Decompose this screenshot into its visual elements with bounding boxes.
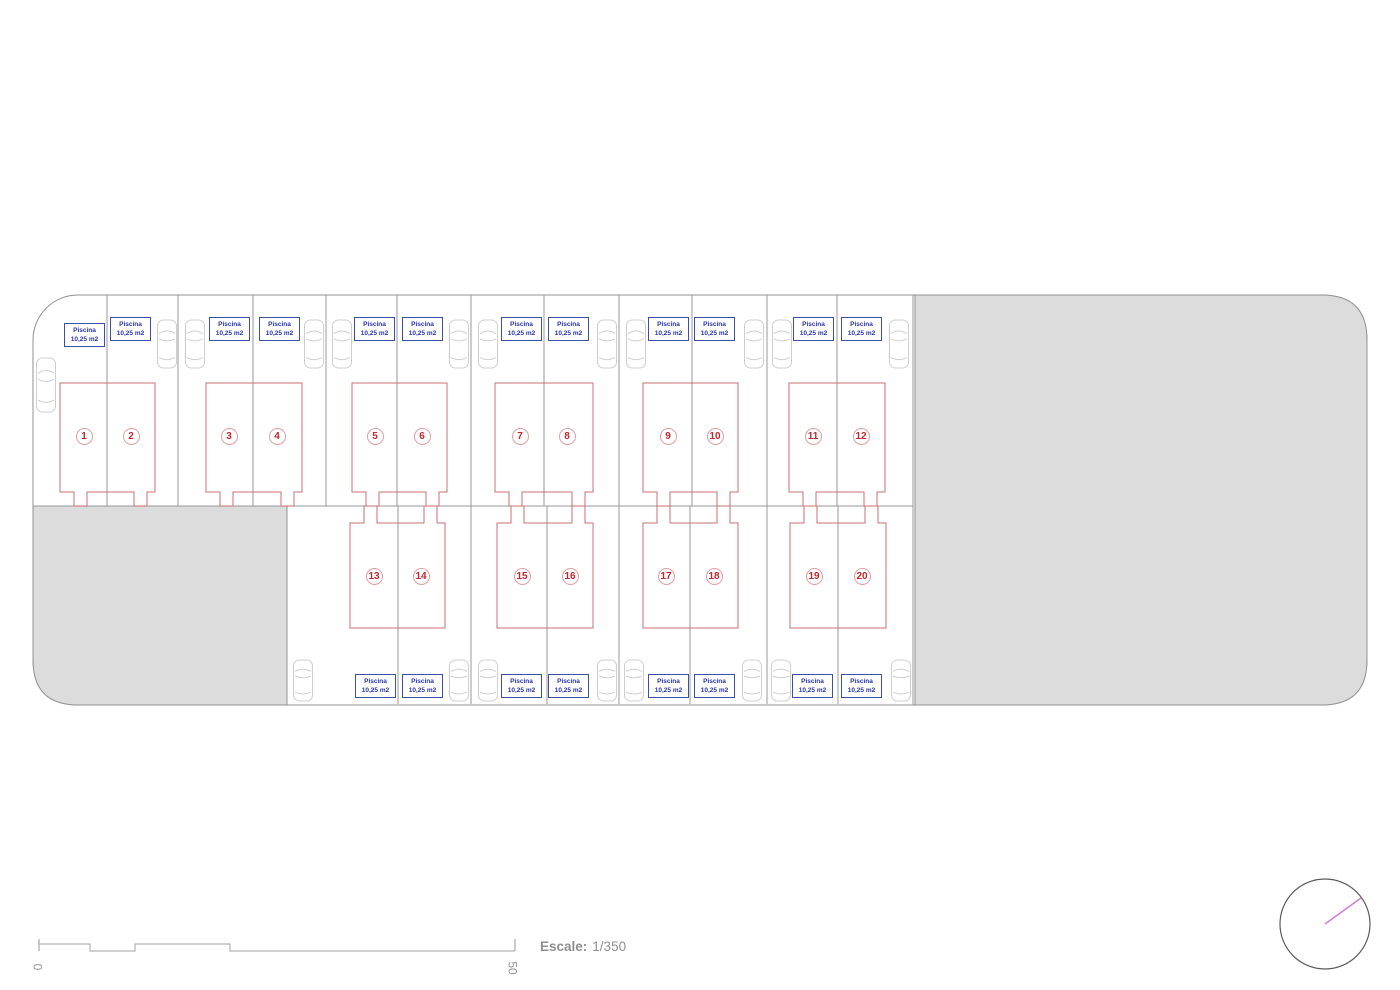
- scale-caption-word: Escale:: [540, 939, 587, 954]
- unit-number-badge: 9: [660, 428, 677, 445]
- site-plan-canvas: Piscina 10,25 m2 1 Piscina 10,25 m2 2 Pi…: [0, 0, 1400, 990]
- pool-label-box: Piscina 10,25 m2: [402, 674, 443, 698]
- unit-number-badge: 8: [559, 428, 576, 445]
- pool-label-box: Piscina 10,25 m2: [64, 323, 105, 347]
- pool-label-line1: Piscina: [403, 678, 442, 687]
- pool-label-line1: Piscina: [356, 678, 395, 687]
- pool-label-line2: 10,25 m2: [403, 687, 442, 696]
- pool-label-line1: Piscina: [549, 321, 588, 330]
- scale-end-label: 50: [506, 961, 520, 974]
- pool-label-box: Piscina 10,25 m2: [354, 317, 395, 341]
- pool-label-box: Piscina 10,25 m2: [501, 317, 542, 341]
- unit-number-badge: 14: [413, 568, 430, 585]
- pool-label-box: Piscina 10,25 m2: [548, 674, 589, 698]
- pool-label-box: Piscina 10,25 m2: [841, 317, 882, 341]
- pool-label-line2: 10,25 m2: [793, 687, 832, 696]
- pool-label-box: Piscina 10,25 m2: [110, 317, 151, 341]
- unit-number-badge: 6: [414, 428, 431, 445]
- pool-label-box: Piscina 10,25 m2: [402, 317, 443, 341]
- pool-label-box: Piscina 10,25 m2: [793, 317, 834, 341]
- unit-number-badge: 19: [806, 568, 823, 585]
- unit-number-badge: 12: [853, 428, 870, 445]
- pool-label-line2: 10,25 m2: [355, 330, 394, 339]
- scale-caption-ratio: 1/350: [592, 939, 626, 954]
- pool-label-box: Piscina 10,25 m2: [548, 317, 589, 341]
- pool-label-line1: Piscina: [695, 678, 734, 687]
- unit-number-badge: 1: [76, 428, 93, 445]
- pool-label-line2: 10,25 m2: [842, 330, 881, 339]
- unit-number-badge: 3: [221, 428, 238, 445]
- pool-label-line1: Piscina: [842, 321, 881, 330]
- labels-overlay: Piscina 10,25 m2 1 Piscina 10,25 m2 2 Pi…: [0, 0, 1400, 990]
- pool-label-line2: 10,25 m2: [356, 687, 395, 696]
- pool-label-box: Piscina 10,25 m2: [648, 317, 689, 341]
- pool-label-box: Piscina 10,25 m2: [648, 674, 689, 698]
- pool-label-line1: Piscina: [649, 321, 688, 330]
- pool-label-line1: Piscina: [502, 321, 541, 330]
- pool-label-line1: Piscina: [549, 678, 588, 687]
- unit-number-badge: 16: [562, 568, 579, 585]
- pool-label-line2: 10,25 m2: [549, 687, 588, 696]
- pool-label-line2: 10,25 m2: [502, 330, 541, 339]
- pool-label-line2: 10,25 m2: [403, 330, 442, 339]
- unit-number-badge: 20: [854, 568, 871, 585]
- pool-label-line1: Piscina: [355, 321, 394, 330]
- pool-label-line2: 10,25 m2: [549, 330, 588, 339]
- pool-label-line1: Piscina: [793, 678, 832, 687]
- pool-label-line2: 10,25 m2: [794, 330, 833, 339]
- unit-number-badge: 7: [512, 428, 529, 445]
- pool-label-line1: Piscina: [210, 321, 249, 330]
- pool-label-line2: 10,25 m2: [695, 687, 734, 696]
- pool-label-line1: Piscina: [65, 327, 104, 336]
- unit-number-badge: 13: [366, 568, 383, 585]
- unit-number-badge: 4: [269, 428, 286, 445]
- pool-label-line1: Piscina: [502, 678, 541, 687]
- pool-label-box: Piscina 10,25 m2: [259, 317, 300, 341]
- pool-label-box: Piscina 10,25 m2: [694, 674, 735, 698]
- pool-label-line1: Piscina: [842, 678, 881, 687]
- pool-label-box: Piscina 10,25 m2: [355, 674, 396, 698]
- pool-label-line1: Piscina: [111, 321, 150, 330]
- pool-label-box: Piscina 10,25 m2: [792, 674, 833, 698]
- pool-label-line1: Piscina: [695, 321, 734, 330]
- unit-number-badge: 15: [514, 568, 531, 585]
- pool-label-line1: Piscina: [260, 321, 299, 330]
- pool-label-line2: 10,25 m2: [695, 330, 734, 339]
- pool-label-line2: 10,25 m2: [502, 687, 541, 696]
- pool-label-box: Piscina 10,25 m2: [501, 674, 542, 698]
- pool-label-line1: Piscina: [649, 678, 688, 687]
- unit-number-badge: 17: [658, 568, 675, 585]
- unit-number-badge: 18: [706, 568, 723, 585]
- pool-label-line2: 10,25 m2: [649, 687, 688, 696]
- pool-label-line2: 10,25 m2: [842, 687, 881, 696]
- pool-label-line2: 10,25 m2: [111, 330, 150, 339]
- scale-caption: Escale:1/350: [540, 939, 626, 954]
- pool-label-line2: 10,25 m2: [260, 330, 299, 339]
- pool-label-box: Piscina 10,25 m2: [209, 317, 250, 341]
- pool-label-box: Piscina 10,25 m2: [841, 674, 882, 698]
- pool-label-box: Piscina 10,25 m2: [694, 317, 735, 341]
- pool-label-line1: Piscina: [794, 321, 833, 330]
- unit-number-badge: 5: [367, 428, 384, 445]
- pool-label-line2: 10,25 m2: [210, 330, 249, 339]
- pool-label-line2: 10,25 m2: [649, 330, 688, 339]
- pool-label-line2: 10,25 m2: [65, 336, 104, 345]
- scale-start-label: 0: [30, 964, 44, 971]
- unit-number-badge: 11: [805, 428, 822, 445]
- unit-number-badge: 10: [707, 428, 724, 445]
- pool-label-line1: Piscina: [403, 321, 442, 330]
- unit-number-badge: 2: [123, 428, 140, 445]
